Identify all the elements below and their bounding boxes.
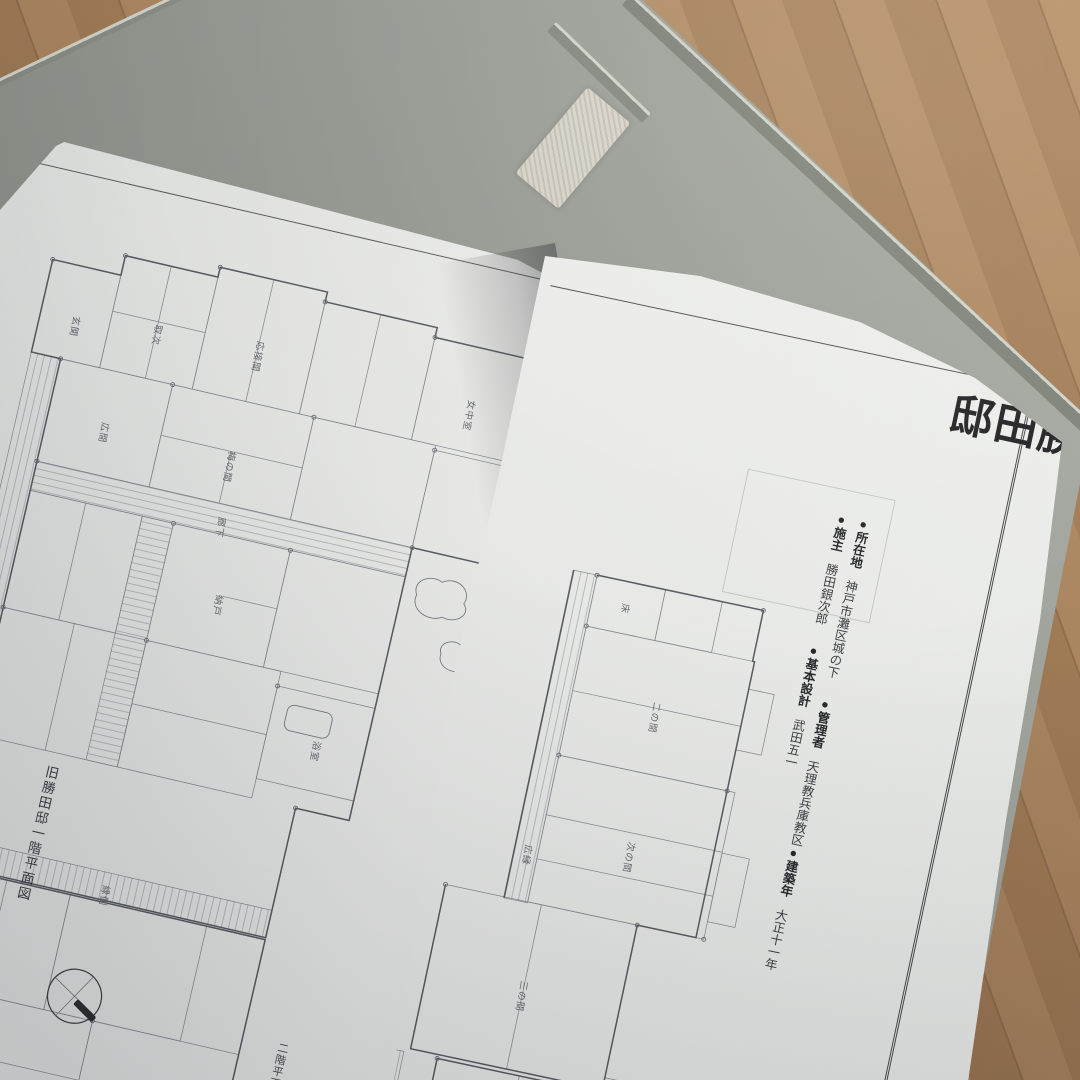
- room-label: 浴室: [307, 740, 323, 763]
- bath-tub: [283, 704, 334, 740]
- room-label: 梅の間: [220, 450, 238, 483]
- room-label: 納戸: [210, 594, 226, 617]
- room-label: 広間: [96, 421, 112, 444]
- room-label: 玄関: [67, 315, 83, 338]
- room-label: 二の間: [646, 701, 662, 734]
- pencil-guideline: [722, 469, 895, 622]
- room-label: 次の間: [620, 841, 637, 874]
- room-label: 床: [618, 603, 632, 615]
- room-label: 取次: [149, 324, 165, 347]
- photo-scene: 玄関 取次 応接間 女中室 台所 広間 梅の間 納戸 浴室 縁側 廊下: [0, 0, 1080, 1080]
- room-label: 応接間: [249, 340, 267, 373]
- room-label: 三の間: [513, 980, 529, 1013]
